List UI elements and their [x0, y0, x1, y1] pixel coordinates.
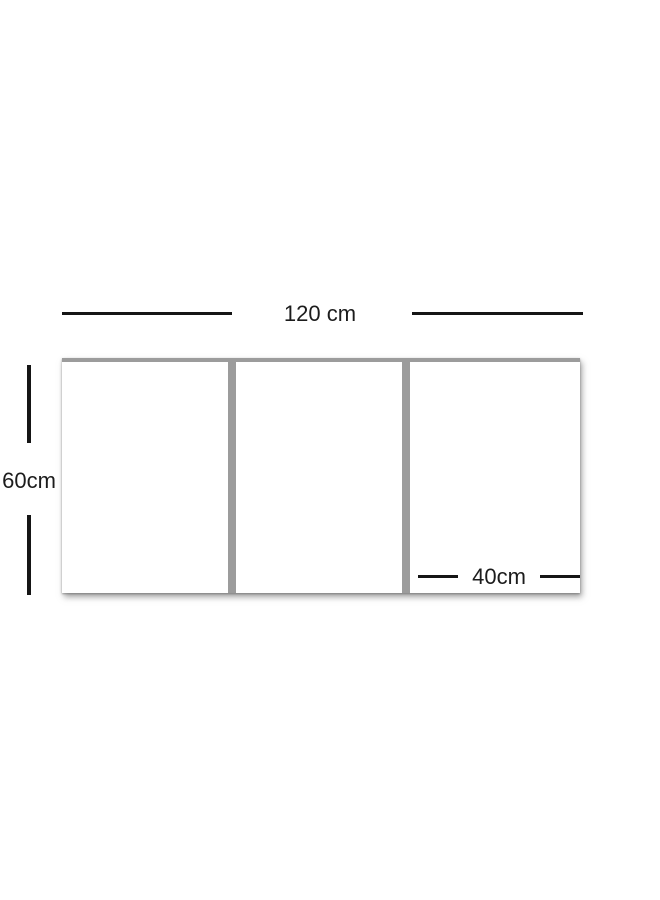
- width-dimension-line-left: [62, 312, 232, 315]
- panel-width-dimension-line-left: [418, 575, 458, 578]
- width-dimension-label: 120 cm: [250, 301, 390, 327]
- canvas-panel-1: [62, 362, 228, 593]
- panel-width-dimension-line-right: [540, 575, 580, 578]
- panel-width-dimension-label: 40cm: [460, 564, 538, 590]
- height-dimension-line-bottom: [27, 515, 31, 595]
- height-dimension-line-top: [27, 365, 31, 443]
- canvas-panel-group: [62, 358, 580, 593]
- dimension-diagram: 120 cm 60cm 40cm: [0, 0, 660, 900]
- canvas-panel-3: [410, 362, 580, 593]
- canvas-panel-2: [236, 362, 402, 593]
- height-dimension-label: 60cm: [0, 468, 58, 494]
- width-dimension-line-right: [412, 312, 583, 315]
